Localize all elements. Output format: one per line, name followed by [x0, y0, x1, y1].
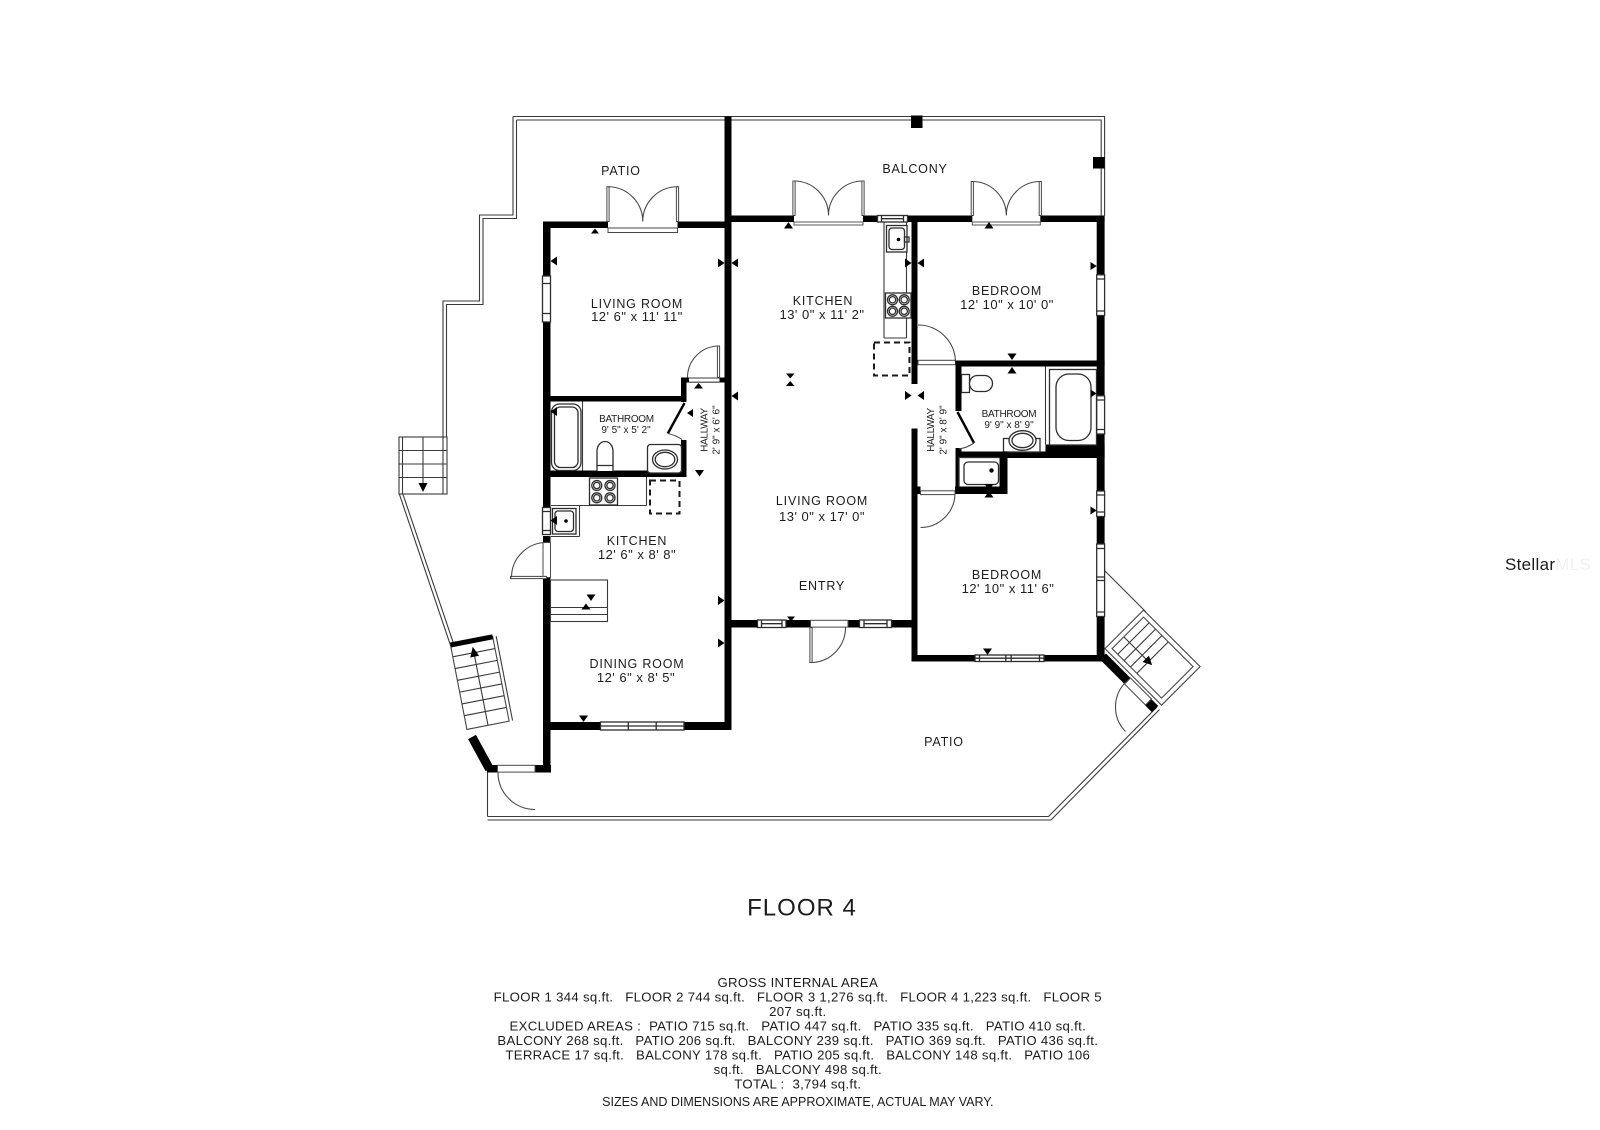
- svg-text:GROSS INTERNAL AREA: GROSS INTERNAL AREA: [718, 975, 879, 990]
- svg-text:LIVING ROOM: LIVING ROOM: [776, 494, 868, 508]
- svg-text:12' 10" x 11' 6": 12' 10" x 11' 6": [962, 581, 1055, 596]
- svg-text:12' 10" x 10' 0": 12' 10" x 10' 0": [960, 297, 1054, 312]
- svg-text:BATHROOM: BATHROOM: [982, 409, 1037, 420]
- svg-text:FLOOR 1 344 sq.ft. FLOOR 2 7: FLOOR 1 344 sq.ft. FLOOR 2 744 sq.ft. FL…: [494, 990, 1102, 1005]
- svg-text:13' 0" x 11' 2": 13' 0" x 11' 2": [779, 307, 864, 322]
- svg-text:2' 9" x 8' 9": 2' 9" x 8' 9": [939, 405, 950, 455]
- svg-text:9' 5" x 5' 2": 9' 5" x 5' 2": [601, 425, 651, 436]
- svg-text:2' 9" x 6' 6": 2' 9" x 6' 6": [712, 405, 723, 455]
- svg-text:BATHROOM: BATHROOM: [599, 414, 654, 425]
- svg-text:12' 6" x 11' 11": 12' 6" x 11' 11": [591, 309, 683, 324]
- svg-text:HALLWAY: HALLWAY: [926, 407, 937, 451]
- svg-text:FLOOR 4: FLOOR 4: [747, 895, 857, 922]
- svg-text:BEDROOM: BEDROOM: [972, 284, 1042, 298]
- svg-text:StellarMLS: StellarMLS: [1505, 555, 1591, 574]
- svg-text:KITCHEN: KITCHEN: [793, 294, 853, 308]
- svg-text:ENTRY: ENTRY: [799, 579, 845, 593]
- svg-text:PATIO: PATIO: [601, 164, 641, 178]
- svg-text:KITCHEN: KITCHEN: [607, 534, 667, 548]
- svg-text:207 sq.ft.: 207 sq.ft.: [769, 1004, 826, 1019]
- svg-text:HALLWAY: HALLWAY: [700, 407, 711, 451]
- svg-text:BEDROOM: BEDROOM: [972, 568, 1042, 582]
- svg-text:DINING ROOM: DINING ROOM: [590, 657, 685, 671]
- svg-text:TERRACE 17 sq.ft. BALCONY 17: TERRACE 17 sq.ft. BALCONY 178 sq.ft. PAT…: [505, 1048, 1090, 1063]
- svg-text:PATIO: PATIO: [924, 735, 964, 749]
- svg-text:BALCONY 268 sq.ft. PATIO 206: BALCONY 268 sq.ft. PATIO 206 sq.ft. BALC…: [497, 1033, 1098, 1048]
- svg-text:13' 0" x 17' 0": 13' 0" x 17' 0": [779, 509, 865, 524]
- svg-text:TOTAL : 3,794 sq.ft.: TOTAL : 3,794 sq.ft.: [734, 1077, 861, 1092]
- svg-text:EXCLUDED AREAS : PATIO 715 sq: EXCLUDED AREAS : PATIO 715 sq.ft. PATIO …: [510, 1019, 1087, 1034]
- svg-text:12' 6" x 8' 5": 12' 6" x 8' 5": [597, 670, 675, 685]
- svg-text:12' 6" x 8' 8": 12' 6" x 8' 8": [598, 547, 676, 562]
- svg-text:sq.ft. BALCONY 498 sq.ft.: sq.ft. BALCONY 498 sq.ft.: [714, 1062, 882, 1077]
- svg-text:9' 9" x 8' 9": 9' 9" x 8' 9": [984, 420, 1034, 431]
- svg-text:SIZES AND DIMENSIONS ARE APPRO: SIZES AND DIMENSIONS ARE APPROXIMATE, AC…: [602, 1095, 993, 1109]
- svg-text:BALCONY: BALCONY: [882, 162, 947, 176]
